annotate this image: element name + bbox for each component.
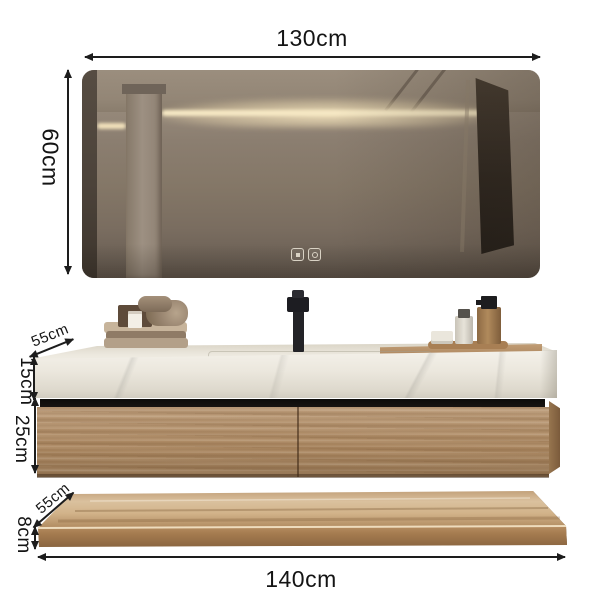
soap-dispenser-pump <box>481 296 497 309</box>
cabinet-height-arrow <box>34 398 36 473</box>
faucet-handle <box>292 290 304 298</box>
soap-dispenser-spout <box>476 300 483 305</box>
defogger-touch-icon <box>291 248 304 261</box>
mirror-width-label: 130cm <box>252 25 372 52</box>
mirror-height-arrow <box>67 70 69 274</box>
counter-height-arrow <box>33 357 35 400</box>
floating-shelf <box>30 483 575 555</box>
light-touch-icon <box>308 248 321 261</box>
glass-bottle <box>455 316 473 344</box>
led-mirror <box>82 70 540 278</box>
drawer-divider <box>297 407 299 477</box>
mirror-height-label: 60cm <box>37 128 64 188</box>
cabinet-side-panel <box>549 401 560 474</box>
cabinet-height-label: 25cm <box>10 415 32 457</box>
shelf-front-face <box>38 526 567 547</box>
soap-dish <box>431 331 453 344</box>
mirror-width-arrow <box>85 56 540 58</box>
cabinet-bottom-shadow <box>37 474 549 478</box>
soap-dispenser-body <box>477 307 501 344</box>
product-dimension-diagram: 130cm 60cm 55cm <box>0 0 600 600</box>
drawer-fronts <box>37 407 549 477</box>
folded-towel <box>104 338 188 348</box>
rolled-towel <box>138 296 172 312</box>
glass-bottle-cap <box>458 309 470 318</box>
total-width-label: 140cm <box>241 566 361 593</box>
faucet-spout <box>287 297 309 312</box>
towel-tag <box>128 311 142 328</box>
total-width-arrow <box>38 556 565 558</box>
shelf-height-arrow <box>34 527 36 549</box>
countertop-side-shading <box>540 350 557 398</box>
